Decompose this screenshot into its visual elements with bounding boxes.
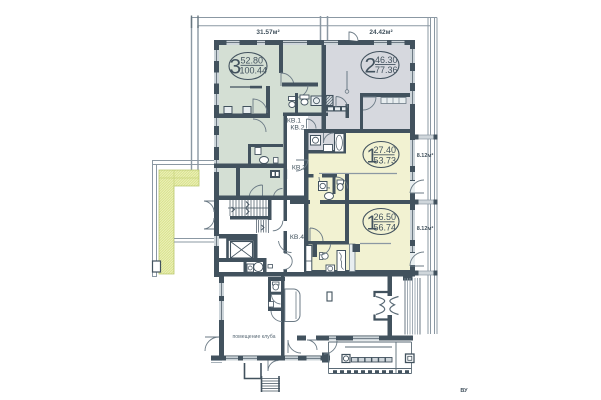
- svg-text:56.74: 56.74: [374, 223, 397, 233]
- svg-text:помещение клуба: помещение клуба: [232, 334, 275, 340]
- svg-text:КВ.2: КВ.2: [290, 125, 304, 132]
- svg-text:27.40: 27.40: [374, 145, 397, 155]
- svg-text:100.44: 100.44: [240, 66, 268, 76]
- svg-text:52.80: 52.80: [241, 56, 264, 66]
- svg-text:26.50: 26.50: [374, 212, 397, 222]
- svg-text:24.42м²: 24.42м²: [369, 29, 393, 36]
- svg-text:46.30: 46.30: [375, 55, 398, 65]
- svg-text:31.57м²: 31.57м²: [256, 29, 280, 36]
- svg-text:КВ.1: КВ.1: [287, 118, 301, 125]
- svg-text:77.36: 77.36: [375, 65, 398, 75]
- svg-text:8.12м²: 8.12м²: [417, 225, 434, 232]
- svg-text:8.12м²: 8.12м²: [417, 152, 434, 159]
- svg-text:КВ.4: КВ.4: [290, 234, 304, 241]
- svg-text:53.73: 53.73: [374, 156, 397, 166]
- svg-text:ВУ: ВУ: [460, 388, 468, 394]
